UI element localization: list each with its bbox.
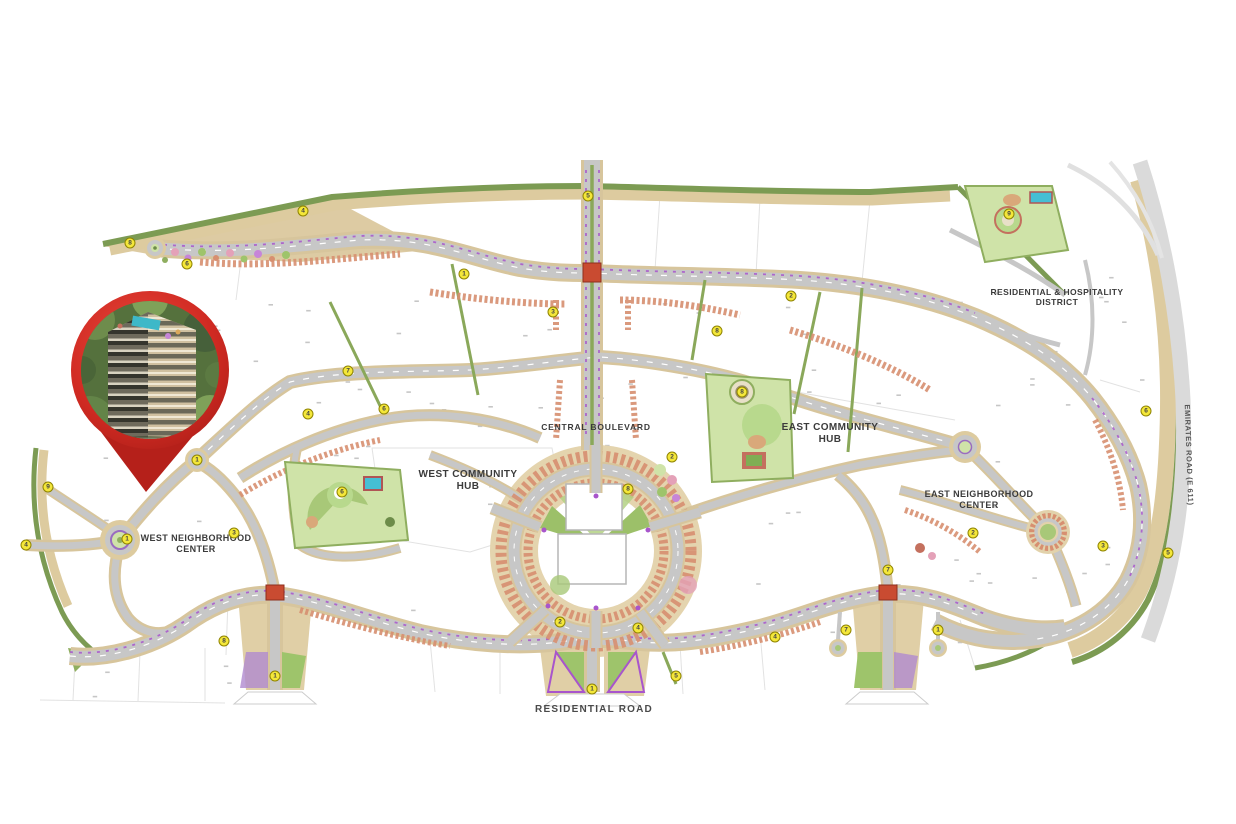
small-roundabout-west bbox=[185, 448, 209, 472]
entrance-triangles bbox=[234, 652, 928, 706]
building-photo bbox=[66, 282, 231, 464]
topleft-roundabout bbox=[144, 237, 166, 259]
southeast-roundabout bbox=[1026, 510, 1070, 554]
district-park bbox=[965, 186, 1068, 262]
masterplan-map: CENTRAL BOULEVARD WEST COMMUNITY HUB EAS… bbox=[0, 0, 1236, 824]
east-roundabout bbox=[949, 431, 981, 463]
map-canvas bbox=[0, 0, 1236, 824]
east-hub-park bbox=[706, 374, 793, 482]
west-roundabout bbox=[100, 520, 140, 560]
west-park bbox=[285, 462, 408, 548]
